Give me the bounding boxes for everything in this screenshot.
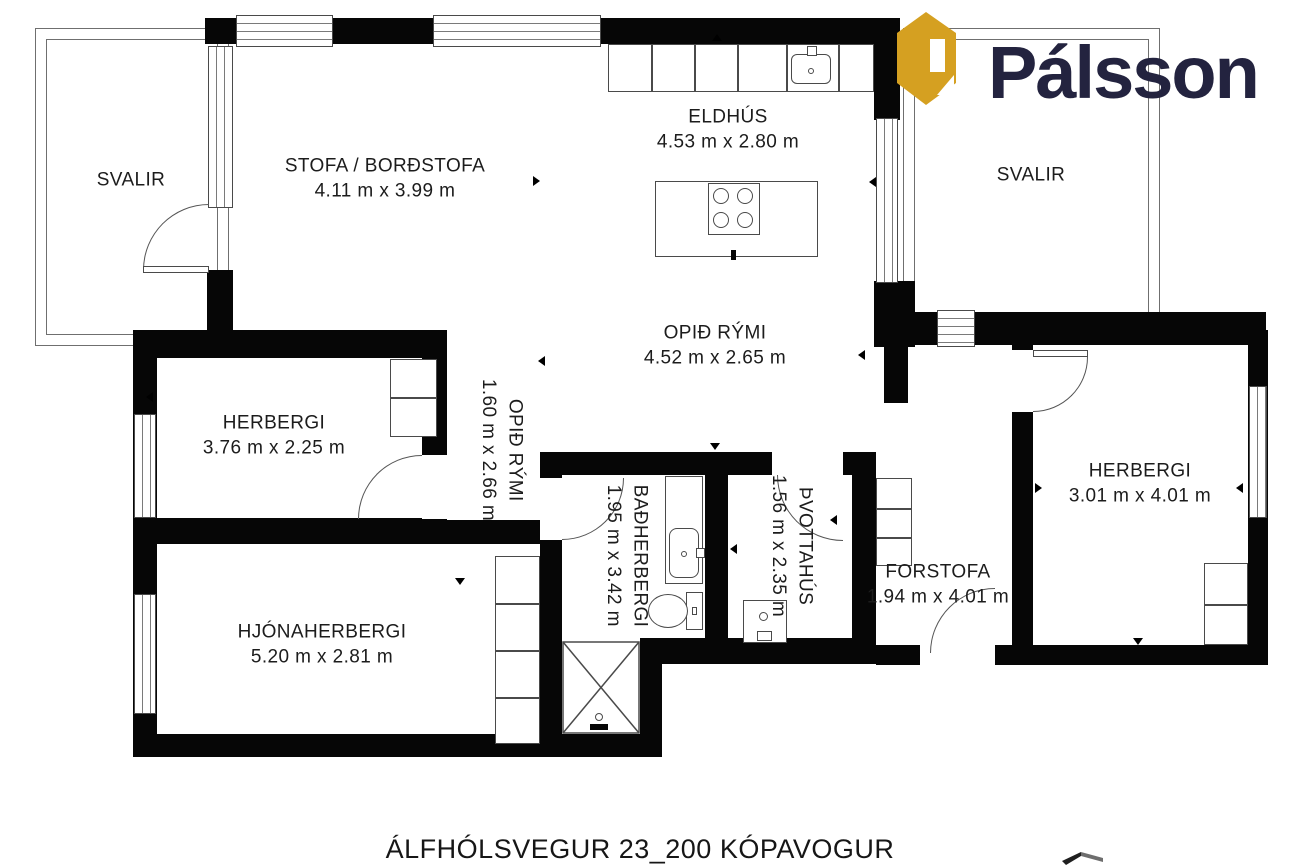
door-leaf — [1033, 350, 1088, 357]
door-opening — [422, 455, 447, 519]
wardrobe-divider — [1205, 604, 1247, 606]
room-label-hjonaherbergi: HJÓNAHERBERGI 5.20 m x 2.81 m — [238, 620, 407, 669]
room-name: OPIÐ RÝMI — [644, 321, 786, 346]
wall-segment — [133, 518, 425, 544]
room-dims: 3.01 m x 4.01 m — [1069, 484, 1211, 509]
room-name: HJÓNAHERBERGI — [238, 620, 407, 645]
room-dims: 5.20 m x 2.81 m — [238, 645, 407, 670]
room-label-herbergi-left: HERBERGI 3.76 m x 2.25 m — [203, 411, 345, 460]
cabinet-divider — [877, 508, 911, 510]
window — [876, 118, 898, 283]
dimension-arrow — [858, 350, 865, 360]
window — [937, 310, 975, 347]
sink-drain-icon — [681, 551, 687, 557]
window — [1249, 386, 1267, 518]
dimension-arrow — [710, 443, 720, 450]
wardrobe-divider — [496, 603, 539, 605]
room-dims: 1.95 m x 3.42 m — [599, 485, 626, 628]
cabinet-divider — [877, 537, 911, 539]
dimension-arrow — [533, 176, 540, 186]
room-label-eldhus: ELDHÚS 4.53 m x 2.80 m — [657, 105, 799, 154]
door-swing-arc — [358, 455, 422, 519]
burner-icon — [737, 212, 753, 228]
room-dims: 1.94 m x 4.01 m — [867, 585, 1009, 610]
door-opening — [772, 452, 843, 475]
burner-icon — [713, 188, 729, 204]
hall-cabinet — [876, 478, 912, 566]
room-name: ÞVOTTAHÚS — [791, 475, 818, 617]
room-label-badherbergi: BAÐHERBERGI 1.95 m x 3.42 m — [599, 485, 652, 628]
shower-head-icon — [595, 713, 603, 721]
room-label-svalir-right: SVALIR — [997, 164, 1066, 189]
room-name: HERBERGI — [203, 411, 345, 436]
room-name: SVALIR — [997, 164, 1066, 189]
dimension-arrow — [730, 544, 737, 554]
room-label-thvottahus: ÞVOTTAHÚS 1.56 m x 2.35 m — [764, 475, 817, 617]
wardrobe-divider — [391, 397, 436, 399]
room-label-opid-rymi-gangur: OPIÐ RÝMI 1.60 m x 2.66 m — [474, 379, 527, 521]
wardrobe-divider — [496, 650, 539, 652]
dimension-tick — [731, 250, 736, 260]
dimension-arrow — [1035, 483, 1042, 493]
room-name: ELDHÚS — [657, 105, 799, 130]
palsson-logo-icon — [897, 12, 957, 105]
room-dims: 3.76 m x 2.25 m — [203, 436, 345, 461]
balcony-door-window — [208, 46, 233, 208]
window — [134, 594, 156, 714]
room-name: SVALIR — [97, 169, 166, 194]
dimension-arrow — [869, 177, 876, 187]
wall-segment — [705, 452, 728, 648]
flush-button-icon — [692, 607, 697, 615]
room-label-stofa: STOFA / BORÐSTOFA 4.11 m x 3.99 m — [285, 154, 485, 203]
door-swing-arc — [1033, 357, 1088, 412]
wall-segment — [133, 330, 447, 358]
window — [134, 414, 156, 518]
dimension-arrow — [1133, 638, 1143, 645]
floor-plan: SVALIR STOFA / BORÐSTOFA 4.11 m x 3.99 m… — [0, 0, 1300, 867]
wall-segment — [884, 345, 908, 403]
wall-segment — [133, 734, 662, 757]
door-opening — [1012, 350, 1033, 412]
wall-segment — [422, 520, 540, 544]
dimension-arrow — [712, 34, 722, 41]
window — [236, 15, 333, 47]
kitchen-counter — [608, 44, 874, 92]
room-name: OPIÐ RÝMI — [501, 379, 528, 521]
toilet-bowl — [648, 594, 688, 628]
faucet-icon — [696, 548, 705, 558]
watermark-partial-icon — [1055, 850, 1107, 867]
room-dims: 1.56 m x 2.35 m — [764, 475, 791, 617]
door-leaf — [143, 266, 209, 273]
address-text: ÁLFHÓLSVEGUR 23_200 KÓPAVOGUR — [290, 834, 990, 865]
window — [433, 15, 601, 47]
room-label-herbergi-right: HERBERGI 3.01 m x 4.01 m — [1069, 459, 1211, 508]
room-name: BAÐHERBERGI — [626, 485, 653, 628]
burner-icon — [713, 212, 729, 228]
dimension-arrow — [146, 392, 153, 402]
counter-divider — [694, 45, 696, 91]
shower-base-icon — [590, 724, 608, 730]
room-label-forstofa: FORSTOFA 1.94 m x 4.01 m — [867, 560, 1009, 609]
wall-segment — [874, 312, 1266, 345]
room-dims: 4.52 m x 2.65 m — [644, 346, 786, 371]
counter-divider — [737, 45, 739, 91]
wall-segment — [852, 452, 876, 648]
room-dims: 1.60 m x 2.66 m — [474, 379, 501, 521]
dimension-arrow — [830, 515, 837, 525]
room-dims: 4.11 m x 3.99 m — [285, 179, 485, 204]
washer-drawer-icon — [757, 631, 772, 641]
room-label-opid-rymi: OPIÐ RÝMI 4.52 m x 2.65 m — [644, 321, 786, 370]
faucet-icon — [807, 46, 817, 56]
dimension-arrow — [538, 356, 545, 366]
room-name: HERBERGI — [1069, 459, 1211, 484]
counter-divider — [838, 45, 840, 91]
room-name: STOFA / BORÐSTOFA — [285, 154, 485, 179]
room-dims: 4.53 m x 2.80 m — [657, 130, 799, 155]
dimension-arrow — [455, 578, 465, 585]
brand-name: Pálsson — [988, 30, 1258, 115]
counter-divider — [786, 45, 788, 91]
room-name: FORSTOFA — [867, 560, 1009, 585]
wardrobe-divider — [496, 697, 539, 699]
dimension-arrow — [1236, 483, 1243, 493]
door-opening — [540, 478, 562, 540]
sink-drain-icon — [808, 68, 814, 74]
room-label-svalir-left: SVALIR — [97, 169, 166, 194]
burner-icon — [737, 188, 753, 204]
counter-divider — [651, 45, 653, 91]
